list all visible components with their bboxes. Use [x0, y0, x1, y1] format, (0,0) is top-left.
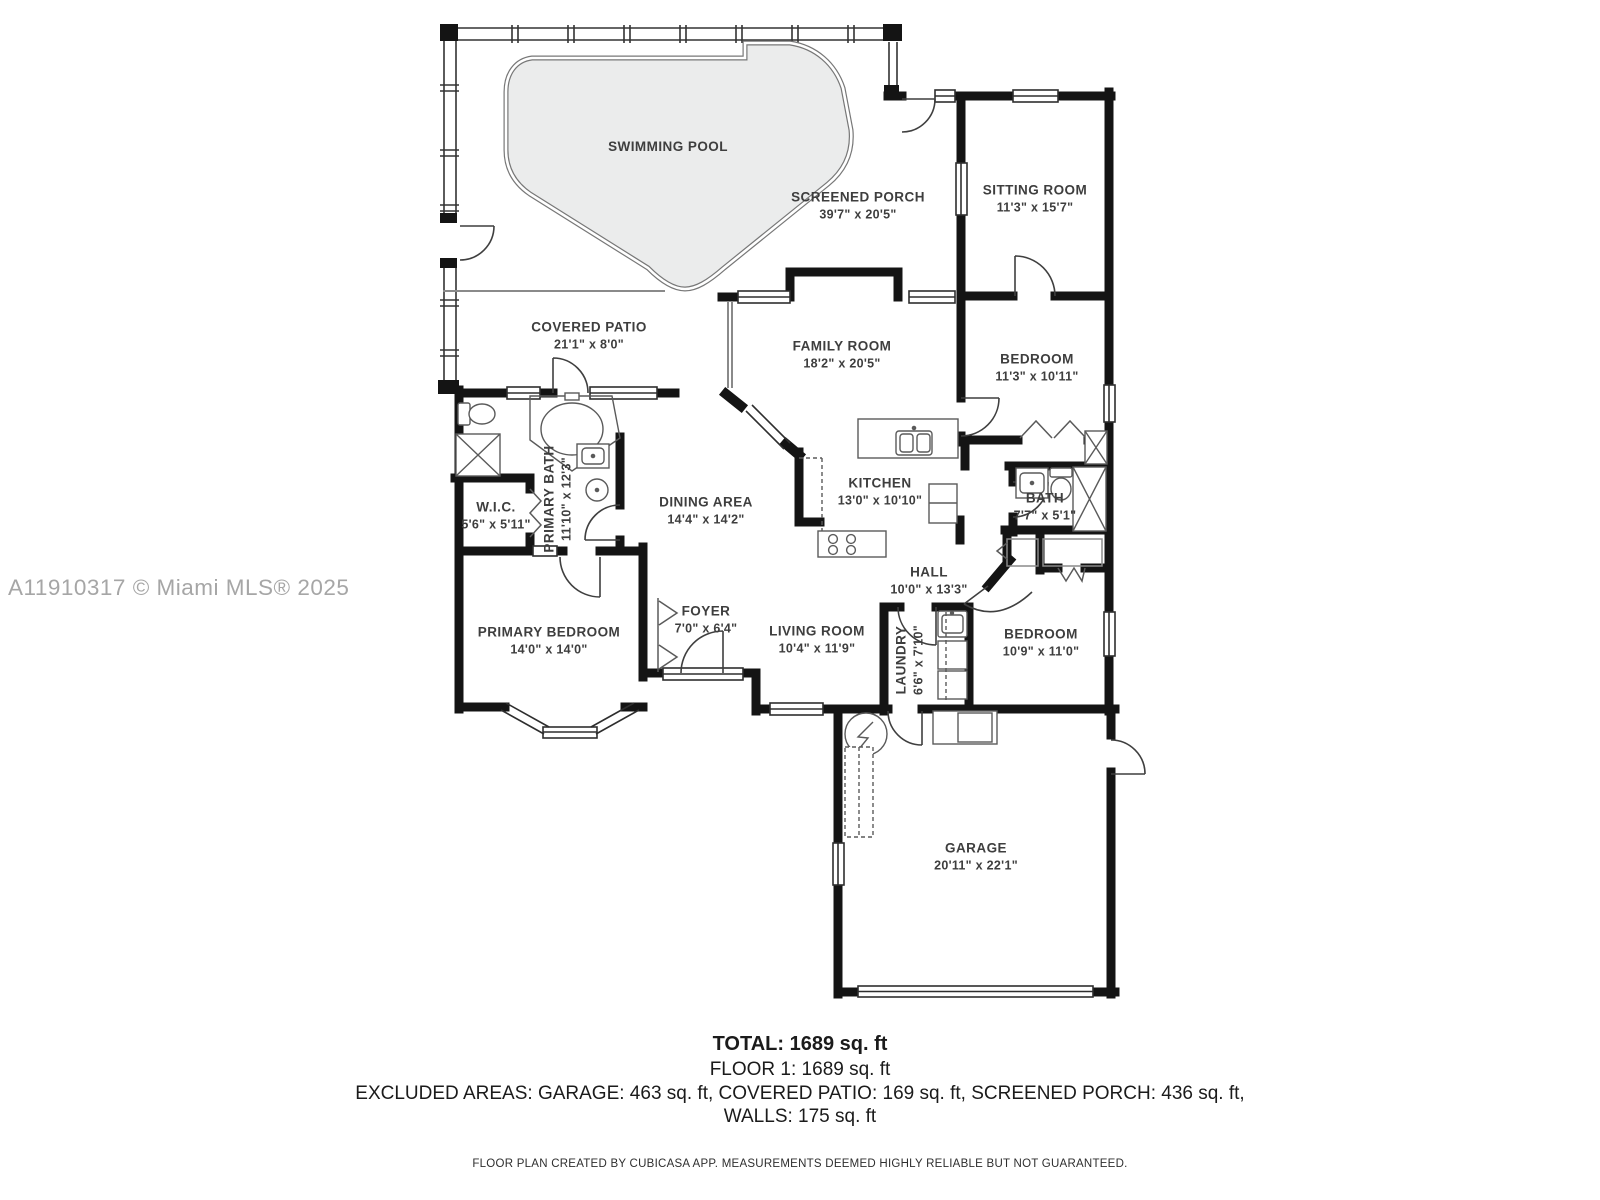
- porch-top-door: [902, 99, 935, 132]
- room-label-bedroom-bottom: BEDROOM 10'9" x 11'0": [1003, 627, 1080, 658]
- room-dims: 39'7" x 20'5": [819, 209, 896, 222]
- stove-icon: [818, 531, 886, 557]
- total-area: TOTAL: 1689 sq. ft: [0, 1032, 1600, 1056]
- room-name: LAUNDRY: [894, 626, 908, 695]
- room-name: DINING AREA: [659, 495, 753, 509]
- room-dims: 11'10" x 12'3": [561, 457, 574, 541]
- room-name: HALL: [910, 565, 948, 579]
- room-name: BEDROOM: [1004, 627, 1078, 641]
- hvac-unit-icon: [933, 711, 997, 744]
- bedroom1-door: [961, 398, 999, 436]
- laundry-sink-icon: [938, 611, 967, 637]
- porch-left-door: [460, 226, 494, 260]
- toilet-icon: [458, 403, 495, 425]
- bedroom2-door: [964, 586, 1032, 612]
- room-name: LIVING ROOM: [769, 624, 865, 638]
- room-name: BATH: [1026, 491, 1064, 505]
- room-label-family-room: FAMILY ROOM 18'2" x 20'5": [793, 339, 892, 370]
- diagonal-walls: [726, 394, 799, 455]
- walls-area: WALLS: 175 sq. ft: [0, 1105, 1600, 1129]
- sitting-room-door: [1015, 256, 1055, 296]
- room-label-garage: GARAGE 20'11" x 22'1": [934, 841, 1018, 872]
- room-label-hall: HALL 10'0" x 13'3": [890, 565, 967, 596]
- room-name: FOYER: [682, 604, 731, 618]
- room-name: COVERED PATIO: [531, 320, 647, 334]
- room-name: PRIMARY BATH: [542, 445, 556, 552]
- excluded-areas: EXCLUDED AREAS: GARAGE: 463 sq. ft, COVE…: [0, 1082, 1600, 1106]
- room-label-living-room: LIVING ROOM 10'4" x 11'9": [769, 624, 865, 655]
- room-dims: 13'0" x 10'10": [838, 495, 923, 508]
- bedroom1-closet-bifold: [1020, 421, 1086, 438]
- room-name: SCREENED PORCH: [791, 190, 925, 204]
- room-name: GARAGE: [945, 841, 1007, 855]
- room-label-screened-porch: SCREENED PORCH 39'7" x 20'5": [791, 190, 925, 221]
- garage-shelf-icon: [845, 747, 873, 837]
- room-name: SITTING ROOM: [983, 183, 1087, 197]
- mls-watermark: A11910317 © Miami MLS® 2025: [8, 575, 349, 601]
- room-label-dining-area: DINING AREA 14'4" x 14'2": [659, 495, 753, 526]
- room-dims: 7'0" x 6'4": [675, 623, 738, 636]
- fridge-icon: [929, 484, 957, 523]
- room-label-foyer: FOYER 7'0" x 6'4": [675, 604, 738, 635]
- room-label-swimming-pool: SWIMMING POOL: [608, 140, 728, 154]
- room-label-primary-bath: PRIMARY BATH 11'10" x 12'3": [542, 445, 573, 552]
- swimming-pool-shape: [506, 43, 851, 289]
- bath1-door: [585, 505, 620, 540]
- garage-entry-door: [888, 711, 922, 745]
- shower-icon: [456, 434, 500, 476]
- room-name: SWIMMING POOL: [608, 140, 728, 154]
- garage-side-door: [1111, 740, 1145, 774]
- room-name: FAMILY ROOM: [793, 339, 892, 353]
- room-label-laundry: LAUNDRY 6'6" x 7'10": [894, 625, 925, 695]
- bath2-shower-icon: [1073, 467, 1106, 531]
- wic-bifold: [530, 489, 541, 537]
- room-dims: 6'6" x 7'10": [913, 625, 926, 695]
- room-dims: 10'4" x 11'9": [779, 643, 856, 656]
- room-name: BEDROOM: [1000, 352, 1074, 366]
- room-dims: 10'0" x 13'3": [890, 584, 967, 597]
- disclaimer-text: FLOOR PLAN CREATED BY CUBICASA APP. MEAS…: [0, 1158, 1600, 1170]
- room-label-wic: W.I.C. 5'6" x 5'11": [461, 500, 530, 531]
- room-dims: 7'7" x 5'1": [1014, 510, 1077, 523]
- vanity-sink-icon: [577, 444, 609, 468]
- room-label-bedroom-top: BEDROOM 11'3" x 10'11": [995, 352, 1078, 383]
- room-dims: 18'2" x 20'5": [803, 358, 880, 371]
- room-dims: 20'11" x 22'1": [934, 860, 1018, 873]
- room-label-covered-patio: COVERED PATIO 21'1" x 8'0": [531, 320, 647, 351]
- front-door: [681, 631, 723, 673]
- floor-area: FLOOR 1: 1689 sq. ft: [0, 1058, 1600, 1082]
- linen-closet-icon: [1085, 431, 1107, 464]
- room-label-primary-bedroom: PRIMARY BEDROOM 14'0" x 14'0": [478, 625, 621, 656]
- room-label-kitchen: KITCHEN 13'0" x 10'10": [838, 476, 923, 507]
- patio-bath-door: [553, 358, 588, 393]
- primary-bedroom-door: [560, 557, 600, 597]
- pedestal-sink-icon: [586, 479, 608, 501]
- room-dims: 10'9" x 11'0": [1003, 646, 1080, 659]
- room-dims: 14'4" x 14'2": [667, 514, 744, 527]
- room-label-sitting-room: SITTING ROOM 11'3" x 15'7": [983, 183, 1087, 214]
- room-dims: 11'3" x 10'11": [995, 371, 1078, 384]
- area-summary: TOTAL: 1689 sq. ft FLOOR 1: 1689 sq. ft …: [0, 1032, 1600, 1129]
- room-name: PRIMARY BEDROOM: [478, 625, 621, 639]
- room-dims: 14'0" x 14'0": [510, 644, 587, 657]
- room-name: KITCHEN: [848, 476, 911, 490]
- room-dims: 21'1" x 8'0": [554, 339, 624, 352]
- room-dims: 5'6" x 5'11": [461, 519, 530, 532]
- room-name: W.I.C.: [476, 500, 515, 514]
- room-dims: 11'3" x 15'7": [997, 202, 1074, 215]
- room-label-bath: BATH 7'7" x 5'1": [1014, 491, 1077, 522]
